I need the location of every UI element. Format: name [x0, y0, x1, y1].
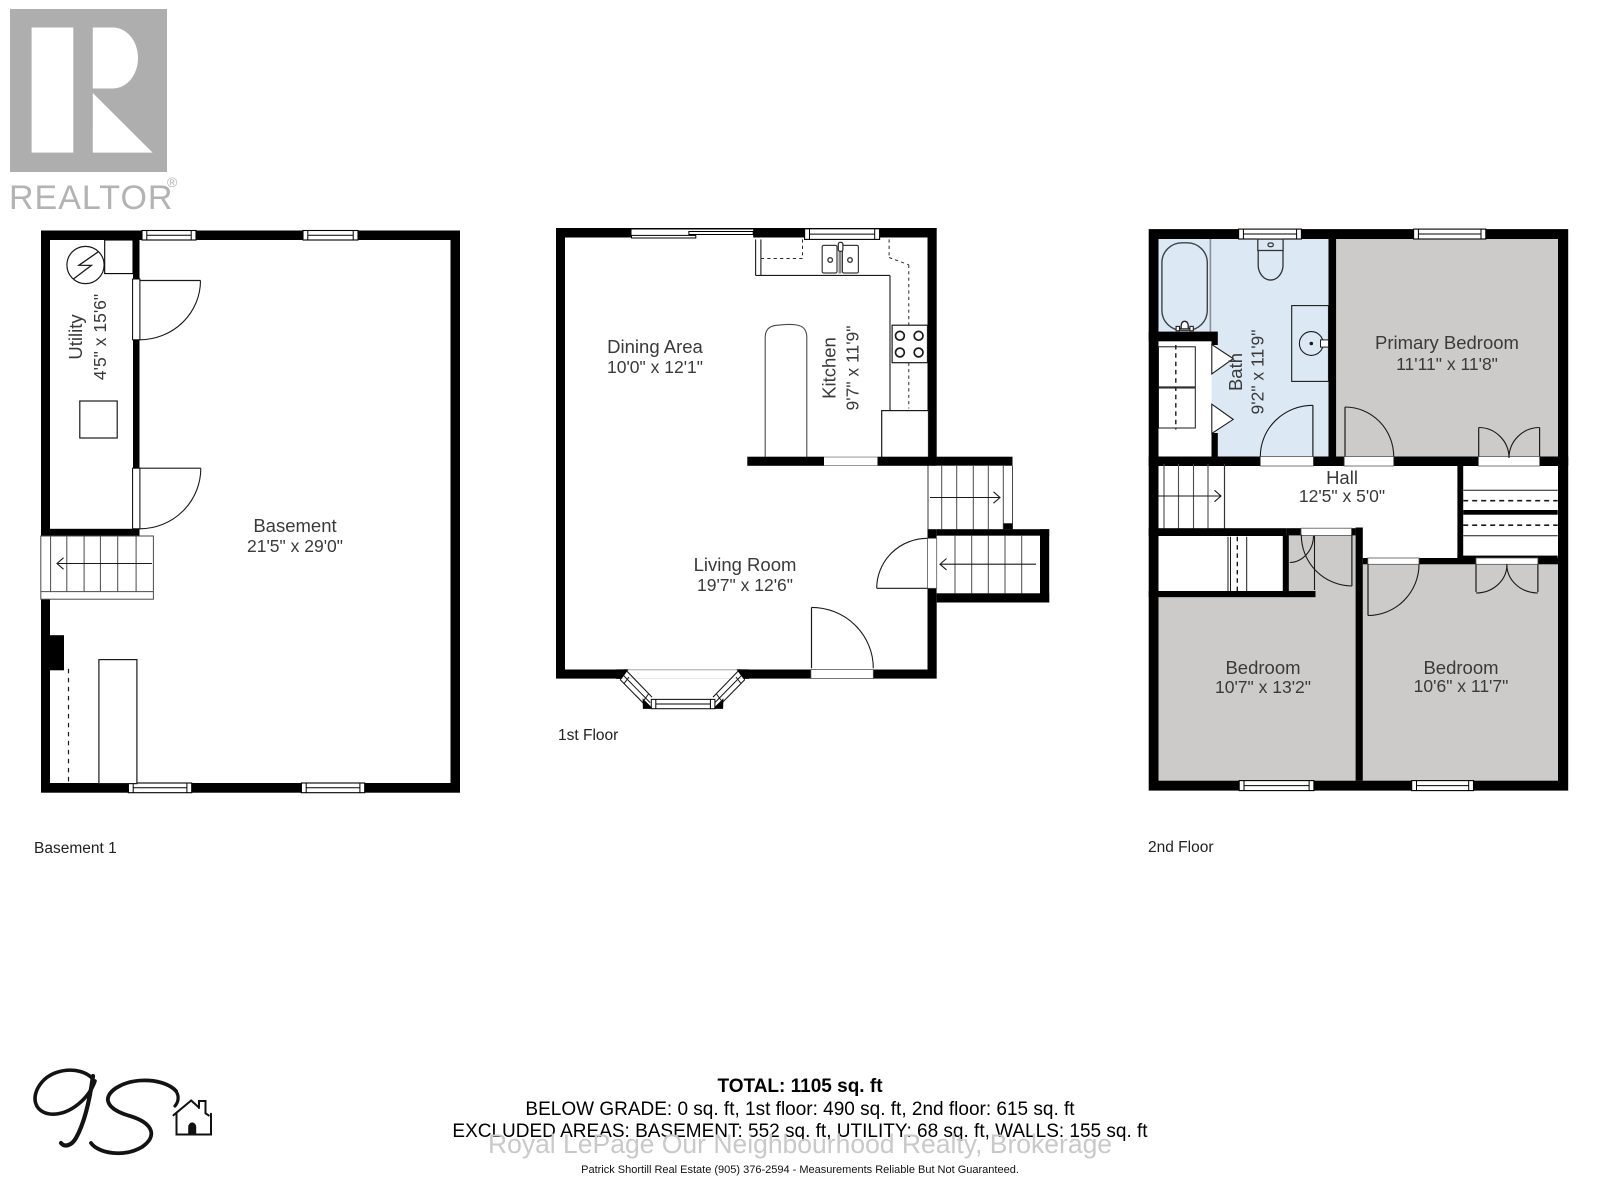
svg-text:Patrick Shortill Real Estate (: Patrick Shortill Real Estate (905) 376-2…: [581, 1164, 1019, 1176]
svg-text:Primary Bedroom: Primary Bedroom: [1375, 332, 1519, 353]
svg-text:Living Room: Living Room: [694, 554, 797, 575]
svg-text:Bedroom: Bedroom: [1423, 657, 1498, 678]
svg-text:Royal LePage Our Neighbourhood: Royal LePage Our Neighbourhood Realty, B…: [488, 1129, 1112, 1159]
svg-text:Basement 1: Basement 1: [34, 840, 117, 857]
svg-text:4'5" x 15'6": 4'5" x 15'6": [90, 294, 110, 380]
svg-text:19'7" x 12'6": 19'7" x 12'6": [697, 575, 793, 595]
svg-text:Basement: Basement: [253, 515, 336, 536]
svg-text:10'0" x 12'1": 10'0" x 12'1": [607, 357, 703, 377]
svg-text:Bedroom: Bedroom: [1225, 657, 1300, 678]
svg-text:Kitchen: Kitchen: [819, 337, 840, 399]
svg-text:10'7" x 13'2": 10'7" x 13'2": [1215, 677, 1311, 697]
svg-text:11'11" x 11'8": 11'11" x 11'8": [1396, 354, 1498, 374]
svg-text:REALTOR: REALTOR: [9, 179, 173, 217]
svg-text:9'2" x 11'9": 9'2" x 11'9": [1248, 330, 1268, 415]
svg-text:1st Floor: 1st Floor: [558, 727, 618, 744]
svg-text:12'5" x 5'0": 12'5" x 5'0": [1299, 486, 1385, 506]
svg-text:Bath: Bath: [1225, 353, 1246, 391]
svg-text:®: ®: [167, 174, 178, 190]
svg-text:BELOW GRADE: 0 sq. ft, 1st flo: BELOW GRADE: 0 sq. ft, 1st floor: 490 sq…: [525, 1099, 1075, 1120]
svg-text:9'7" x 11'9": 9'7" x 11'9": [843, 326, 863, 411]
svg-text:TOTAL: 1105 sq. ft: TOTAL: 1105 sq. ft: [717, 1076, 883, 1097]
svg-text:10'6" x 11'7": 10'6" x 11'7": [1414, 676, 1509, 696]
svg-text:Utility: Utility: [65, 314, 86, 360]
svg-text:2nd Floor: 2nd Floor: [1148, 839, 1213, 856]
svg-text:Dining Area: Dining Area: [607, 336, 703, 357]
svg-text:21'5" x 29'0": 21'5" x 29'0": [247, 536, 343, 556]
svg-text:Hall: Hall: [1326, 467, 1358, 488]
